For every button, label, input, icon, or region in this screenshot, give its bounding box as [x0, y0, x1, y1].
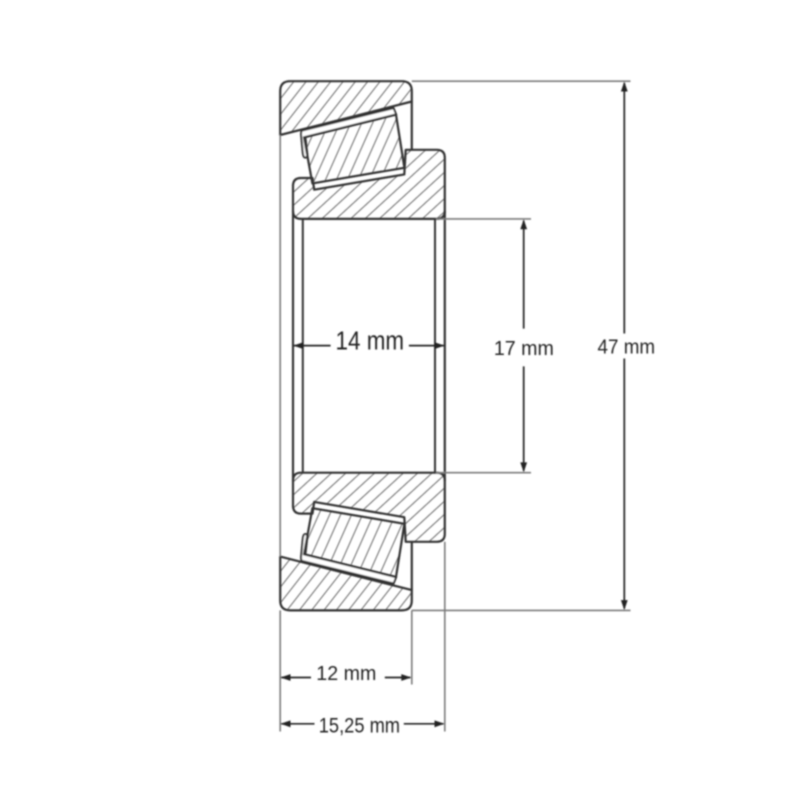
svg-text:12 mm: 12 mm — [316, 662, 376, 685]
svg-text:47 mm: 47 mm — [598, 335, 656, 358]
svg-text:14 mm: 14 mm — [336, 328, 405, 356]
svg-text:17 mm: 17 mm — [494, 337, 554, 360]
svg-text:15,25 mm: 15,25 mm — [319, 714, 400, 737]
